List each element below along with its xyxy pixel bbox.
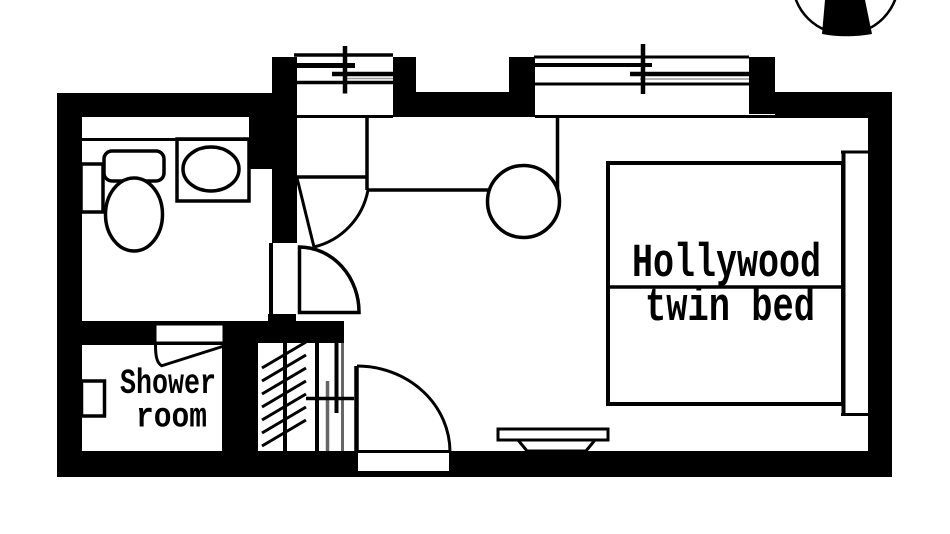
svg-text:twin bed: twin bed <box>645 282 815 335</box>
svg-text:room: room <box>136 398 207 438</box>
